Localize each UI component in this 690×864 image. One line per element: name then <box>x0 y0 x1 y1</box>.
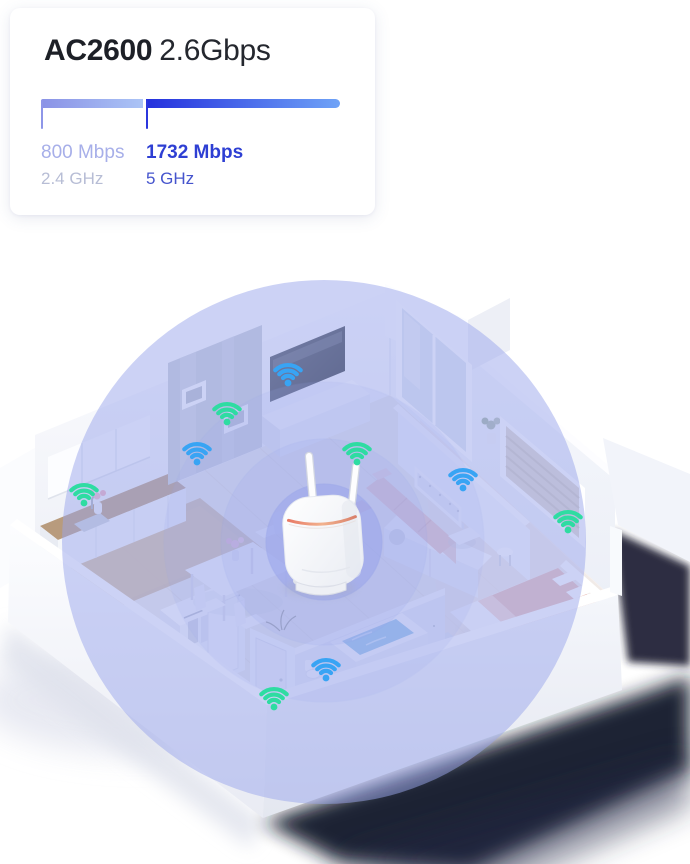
card-title: AC26002.6Gbps <box>44 33 271 69</box>
total-speed: 2.6Gbps <box>159 34 270 67</box>
page: AC26002.6Gbps 800 Mbps 2.4 GHz 1732 Mbps… <box>0 0 690 864</box>
bar-segment-2g <box>41 99 143 108</box>
band-2g: 800 Mbps 2.4 GHz <box>41 141 146 190</box>
speed-spec-card: AC26002.6Gbps 800 Mbps 2.4 GHz 1732 Mbps… <box>10 8 375 215</box>
speed-label-5g: 1732 Mbps <box>146 141 243 165</box>
freq-label-2g: 2.4 GHz <box>41 168 146 190</box>
bandwidth-bar <box>41 99 341 108</box>
tick-5g <box>146 100 148 129</box>
freq-label-5g: 5 GHz <box>146 168 243 190</box>
band-5g: 1732 Mbps 5 GHz <box>146 141 243 190</box>
speed-label-2g: 800 Mbps <box>41 141 146 165</box>
tick-2g <box>41 100 43 129</box>
bar-segment-5g <box>146 99 340 108</box>
model-name: AC2600 <box>44 34 152 67</box>
house-illustration <box>0 230 690 864</box>
band-labels: 800 Mbps 2.4 GHz 1732 Mbps 5 GHz <box>41 141 243 190</box>
